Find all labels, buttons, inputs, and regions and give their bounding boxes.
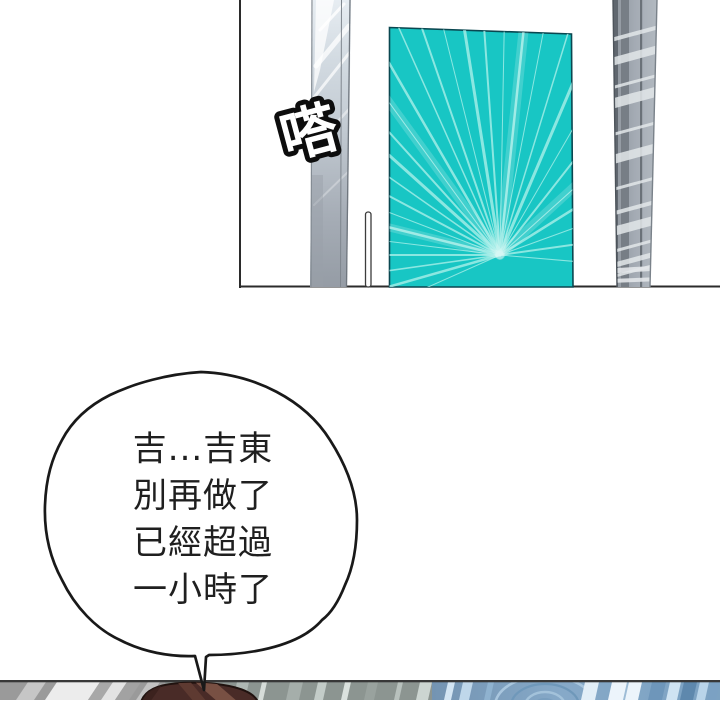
bubble-line-1: 吉...吉東 [85, 426, 321, 473]
bubble-line-2: 別再做了 [85, 473, 321, 520]
speech-bubble-text: 吉...吉東 別再做了 已經超過 一小時了 [85, 426, 321, 614]
door-edge-rod [366, 212, 372, 287]
bubble-line-4: 一小時了 [85, 567, 321, 614]
comic-page: 嗒 [0, 0, 720, 700]
panel-left-border [239, 0, 241, 288]
bubble-line-3: 已經超過 [85, 520, 321, 567]
panel-door-scene: 嗒 [0, 0, 720, 290]
wall-pillar-right [611, 0, 659, 287]
